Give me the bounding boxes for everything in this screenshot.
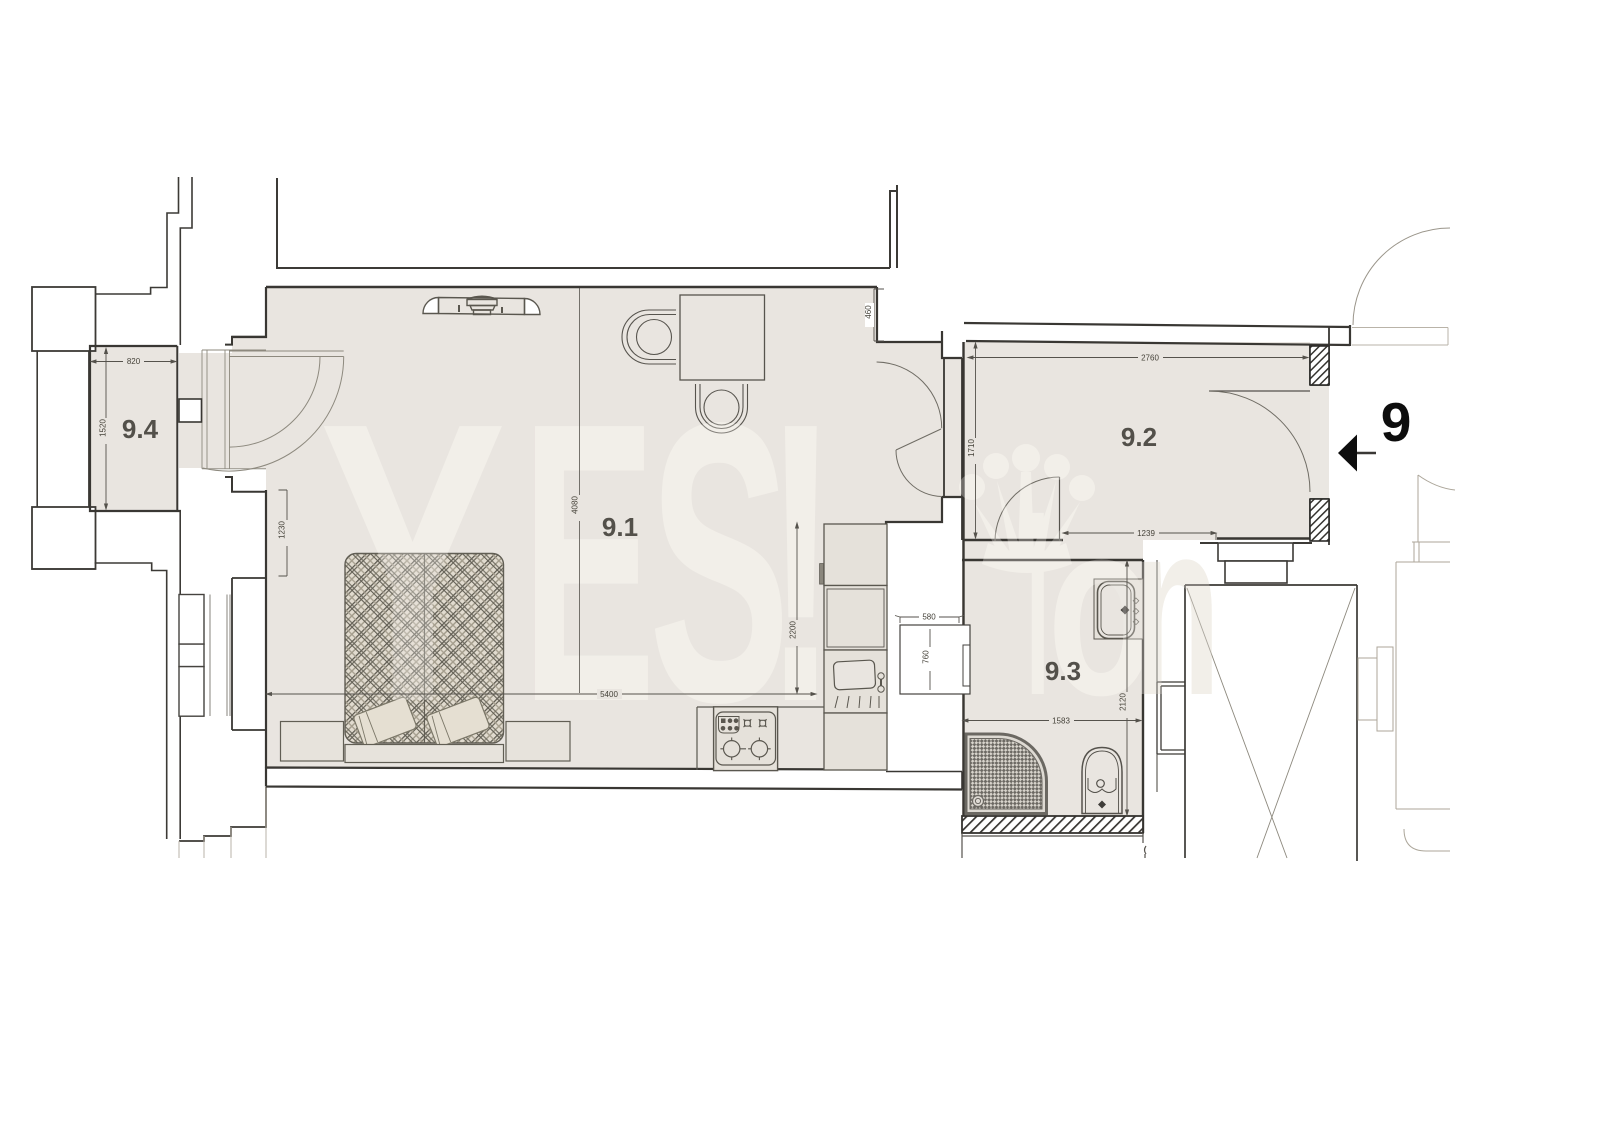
svg-text:580: 580 xyxy=(922,613,936,622)
svg-text:760: 760 xyxy=(922,650,931,664)
svg-text:1710: 1710 xyxy=(967,439,976,457)
svg-text:1239: 1239 xyxy=(1137,529,1155,538)
svg-text:2200: 2200 xyxy=(789,621,798,639)
svg-text:1520: 1520 xyxy=(99,419,108,437)
svg-text:820: 820 xyxy=(127,357,141,366)
svg-text:1583: 1583 xyxy=(1052,717,1070,726)
svg-text:9.3: 9.3 xyxy=(1045,656,1081,686)
svg-text:4080: 4080 xyxy=(571,496,580,514)
svg-text:1230: 1230 xyxy=(278,521,287,539)
svg-text:9.2: 9.2 xyxy=(1121,422,1157,452)
svg-text:9.4: 9.4 xyxy=(122,414,159,444)
svg-text:2760: 2760 xyxy=(1141,354,1159,363)
svg-text:9.1: 9.1 xyxy=(602,512,638,542)
svg-text:2120: 2120 xyxy=(1119,693,1128,711)
svg-text:460: 460 xyxy=(864,305,873,319)
svg-text:5400: 5400 xyxy=(600,690,618,699)
svg-text:9: 9 xyxy=(1381,391,1412,453)
